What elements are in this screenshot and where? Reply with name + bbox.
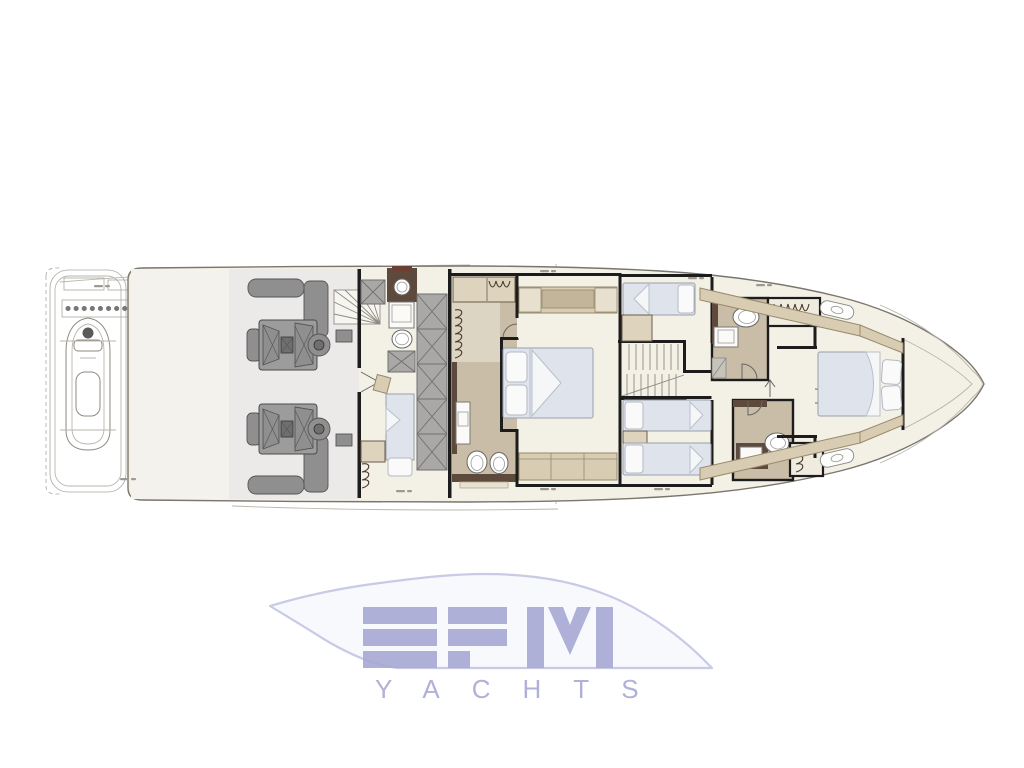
twin-bed-2: [623, 443, 711, 475]
master-pillow-2: [506, 385, 527, 415]
vip-pillow-2: [881, 385, 902, 410]
tender-jetski: [60, 318, 116, 450]
single-bed: [623, 283, 695, 315]
master-wardrobe: [453, 277, 515, 302]
vip-pillow-1: [881, 359, 902, 384]
crew-basin: [392, 330, 412, 348]
exhaust-muffler-stbd: [248, 476, 304, 494]
master-sofa: [519, 453, 617, 480]
crew-bed: [386, 394, 414, 476]
master-toilet: [467, 451, 487, 473]
galley-appliance: [389, 302, 414, 328]
garage-floor: [131, 269, 229, 499]
master-dresser: [519, 287, 617, 313]
master-bed: [503, 348, 593, 418]
swim-platform: [50, 270, 126, 492]
bath-mat: [460, 482, 508, 488]
twin-nightstand: [623, 431, 647, 443]
logo-letter-e: [363, 607, 437, 668]
exhaust-muffler-port: [248, 279, 304, 297]
efm-logo: YACHTS: [270, 574, 712, 704]
single-nightstand: [622, 315, 652, 341]
galley-sink: [394, 279, 410, 295]
master-bidet: [490, 453, 508, 474]
master-pillow-1: [506, 352, 527, 382]
engine-hatch-floor: [417, 294, 447, 470]
vip-bed: [818, 352, 902, 416]
yacht-lower-deck-plan: YACHTS: [0, 0, 1024, 768]
twin-bed-1: [623, 400, 711, 431]
crew-wardrobe: [361, 441, 385, 462]
logo-wordmark: YACHTS: [375, 674, 671, 704]
platform-dashed-edge: [46, 268, 60, 494]
